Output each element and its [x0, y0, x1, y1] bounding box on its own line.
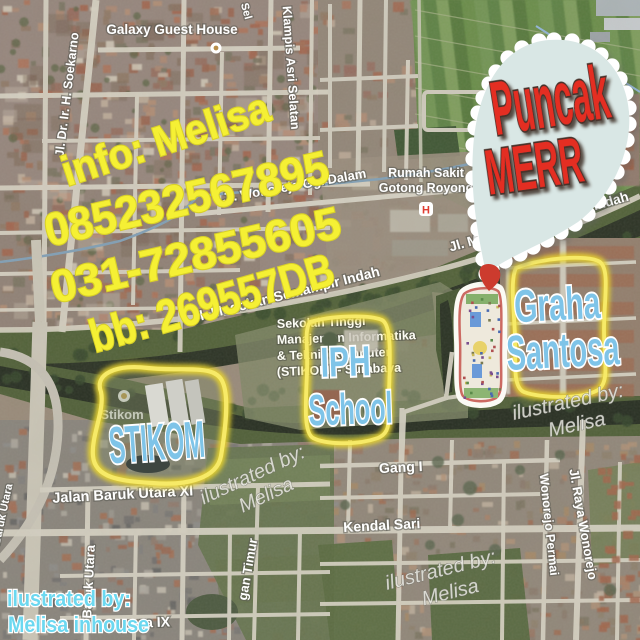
svg-text:IPH: IPH: [320, 337, 372, 386]
svg-text:Galaxy Guest House: Galaxy Guest House: [106, 22, 238, 37]
svg-text:Santosa: Santosa: [505, 321, 621, 381]
svg-text:ilustrated by:: ilustrated by:: [7, 586, 131, 611]
svg-text:H: H: [422, 205, 430, 217]
svg-text:Gotong Royong: Gotong Royong: [379, 181, 473, 195]
svg-text:School: School: [308, 384, 394, 436]
svg-text:Melisa inhouse: Melisa inhouse: [8, 612, 149, 637]
svg-text:Rumah Sakit: Rumah Sakit: [388, 166, 465, 180]
svg-text:MERR: MERR: [481, 124, 588, 209]
svg-text:STIKOM: STIKOM: [107, 411, 207, 476]
svg-text:Gang I: Gang I: [379, 458, 423, 476]
